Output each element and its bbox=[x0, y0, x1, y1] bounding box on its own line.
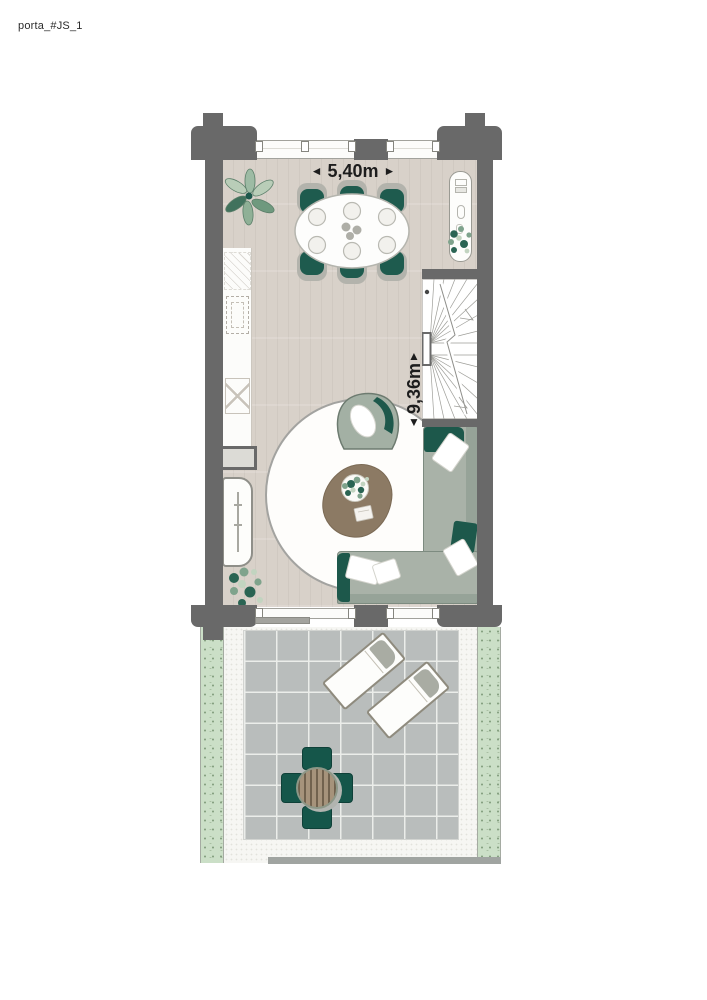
armchair bbox=[330, 389, 406, 455]
window-frame-mark bbox=[432, 141, 440, 152]
window-frame-mark bbox=[301, 141, 309, 152]
window-frame-mark bbox=[386, 608, 394, 619]
window-frame-mark bbox=[348, 141, 356, 152]
window-frame-mark bbox=[432, 608, 440, 619]
planting-strip-left bbox=[200, 627, 224, 863]
coffee-table bbox=[315, 459, 399, 547]
wall-right bbox=[477, 158, 493, 607]
cooktop-icon bbox=[226, 296, 249, 334]
dining-table-with-chairs bbox=[290, 180, 414, 284]
arrow-up-icon: ▲ bbox=[408, 350, 420, 362]
pillar-top-left bbox=[191, 126, 257, 160]
stair-wall-top bbox=[422, 269, 477, 279]
pillar-bottom-right bbox=[437, 605, 502, 627]
kitchen-counter bbox=[223, 248, 252, 446]
sliding-door-leaf bbox=[255, 617, 310, 624]
pillar-cap-bottom-left bbox=[203, 627, 223, 640]
plan-title: porta_#JS_1 bbox=[18, 20, 83, 32]
dimension-width-value: 5,40m bbox=[327, 161, 378, 182]
window-bottom-right bbox=[388, 608, 437, 619]
stair-wall-bottom bbox=[422, 419, 477, 427]
arrow-left-icon: ◄ bbox=[311, 165, 323, 177]
planting-strip-right bbox=[477, 627, 501, 863]
pillar-bottom-left bbox=[191, 605, 257, 627]
wall-left bbox=[205, 158, 223, 607]
pillar-top-center bbox=[354, 139, 388, 160]
plant-icon bbox=[221, 168, 279, 226]
terrace-table bbox=[296, 767, 338, 809]
sink-icon bbox=[225, 378, 250, 414]
dimension-depth-value: 9,36m bbox=[404, 363, 425, 414]
sideboard bbox=[222, 477, 253, 567]
floorplan-canvas: porta_#JS_1 ◄ 5,40m ► ▲ 9,36m ▼ bbox=[0, 0, 707, 1000]
window-frame-mark bbox=[348, 608, 356, 619]
arrow-down-icon: ▼ bbox=[408, 416, 420, 428]
arrow-right-icon: ► bbox=[384, 165, 396, 177]
plant-icon bbox=[220, 558, 270, 610]
terrace-edge bbox=[268, 857, 501, 864]
winder-staircase bbox=[422, 279, 478, 419]
window-top-right bbox=[388, 140, 437, 159]
drainer-icon bbox=[224, 252, 251, 290]
window-frame-mark bbox=[255, 141, 263, 152]
plant-icon bbox=[442, 220, 478, 258]
pillar-bottom-center bbox=[354, 605, 388, 627]
low-cabinet bbox=[219, 446, 257, 470]
pillar-top-right bbox=[437, 126, 502, 160]
window-frame-mark bbox=[386, 141, 394, 152]
dimension-width: ◄ 5,40m ► bbox=[299, 160, 407, 182]
dimension-depth: ▲ 9,36m ▼ bbox=[401, 337, 427, 441]
